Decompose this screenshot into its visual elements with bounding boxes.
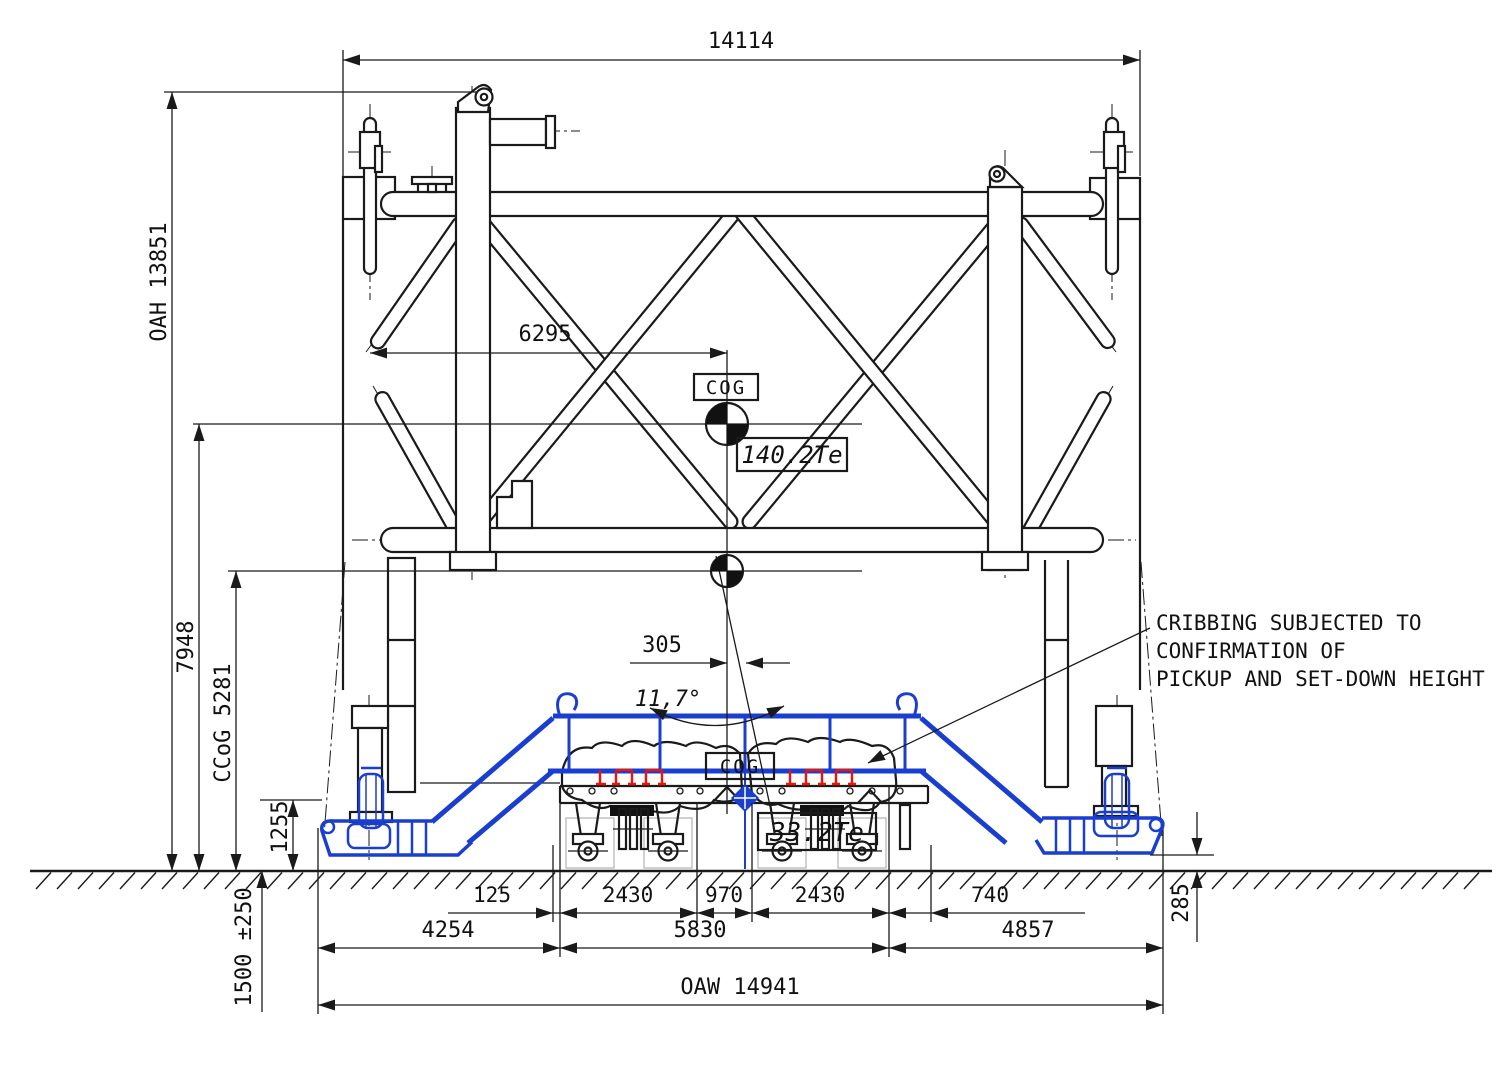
dim-5830: 5830: [674, 918, 727, 943]
dim-740: 740: [971, 883, 1009, 907]
engineering-drawing: 14114 OAH 13851 7948 CCoG 5281 1255 1500…: [0, 0, 1500, 1080]
left-column: [456, 108, 490, 570]
sled-left: [322, 821, 472, 855]
dim-oaw: OAW 14941: [680, 975, 799, 1000]
lifting-padeye-right: [990, 166, 1023, 187]
dim-4857: 4857: [1002, 918, 1055, 943]
weight-cargo-label: 33.2Te: [769, 818, 864, 848]
dim-travel-height: 1500 ±250: [232, 887, 257, 1006]
ramp-right-top: [921, 718, 1042, 822]
cog-upper-label: COG: [706, 377, 746, 399]
sled-right: [1036, 812, 1163, 853]
dim-2430a: 2430: [603, 883, 654, 907]
drawing-canvas: 14114 OAH 13851 7948 CCoG 5281 1255 1500…: [0, 0, 1500, 1080]
hook-left: [558, 694, 577, 716]
cog-axes: [193, 350, 862, 815]
cog-symbol-lower: [711, 555, 743, 587]
right-column: [988, 187, 1022, 570]
cribbing-note-line1: CRIBBING SUBJECTED TO: [1156, 611, 1422, 635]
dim-top-width: 14114: [708, 29, 774, 54]
stub-beam: [490, 119, 546, 145]
ground-hatch: [36, 873, 1479, 890]
cargo-cog-diamond: [731, 784, 759, 812]
dim-125: 125: [473, 883, 511, 907]
hook-right: [897, 694, 916, 716]
cribbing-note-line2: CONFIRMATION OF: [1156, 639, 1346, 663]
cribbing-note: CRIBBING SUBJECTED TO CONFIRMATION OF PI…: [1156, 611, 1485, 691]
dim-oah: OAH 13851: [147, 222, 172, 341]
lifting-padeye-left: [458, 85, 493, 112]
dim-970: 970: [705, 883, 743, 907]
bed-detail-circles: [567, 788, 903, 794]
dim-tilt-angle: 11,7°: [635, 687, 701, 712]
cog-lower-label: COG: [720, 756, 760, 778]
ground: [30, 871, 1492, 889]
dim-ccog: CCoG 5281: [211, 663, 236, 782]
dim-285: 285: [1169, 883, 1194, 923]
cribbing-note-line3: PICKUP AND SET-DOWN HEIGHT: [1156, 667, 1485, 691]
support-leg-right: [1045, 560, 1138, 816]
dim-4254: 4254: [422, 918, 475, 943]
dim-6295: 6295: [519, 322, 572, 347]
dim-7948: 7948: [174, 621, 199, 674]
weight-main-label: 140.2Te: [741, 441, 842, 469]
dim-305: 305: [642, 633, 682, 658]
ramp-left-top: [432, 718, 553, 822]
dim-2430b: 2430: [795, 883, 846, 907]
labels: 14114 OAH 13851 7948 CCoG 5281 1255 1500…: [147, 29, 1485, 1007]
dim-1255: 1255: [268, 801, 293, 854]
top-fitting: [412, 177, 452, 192]
